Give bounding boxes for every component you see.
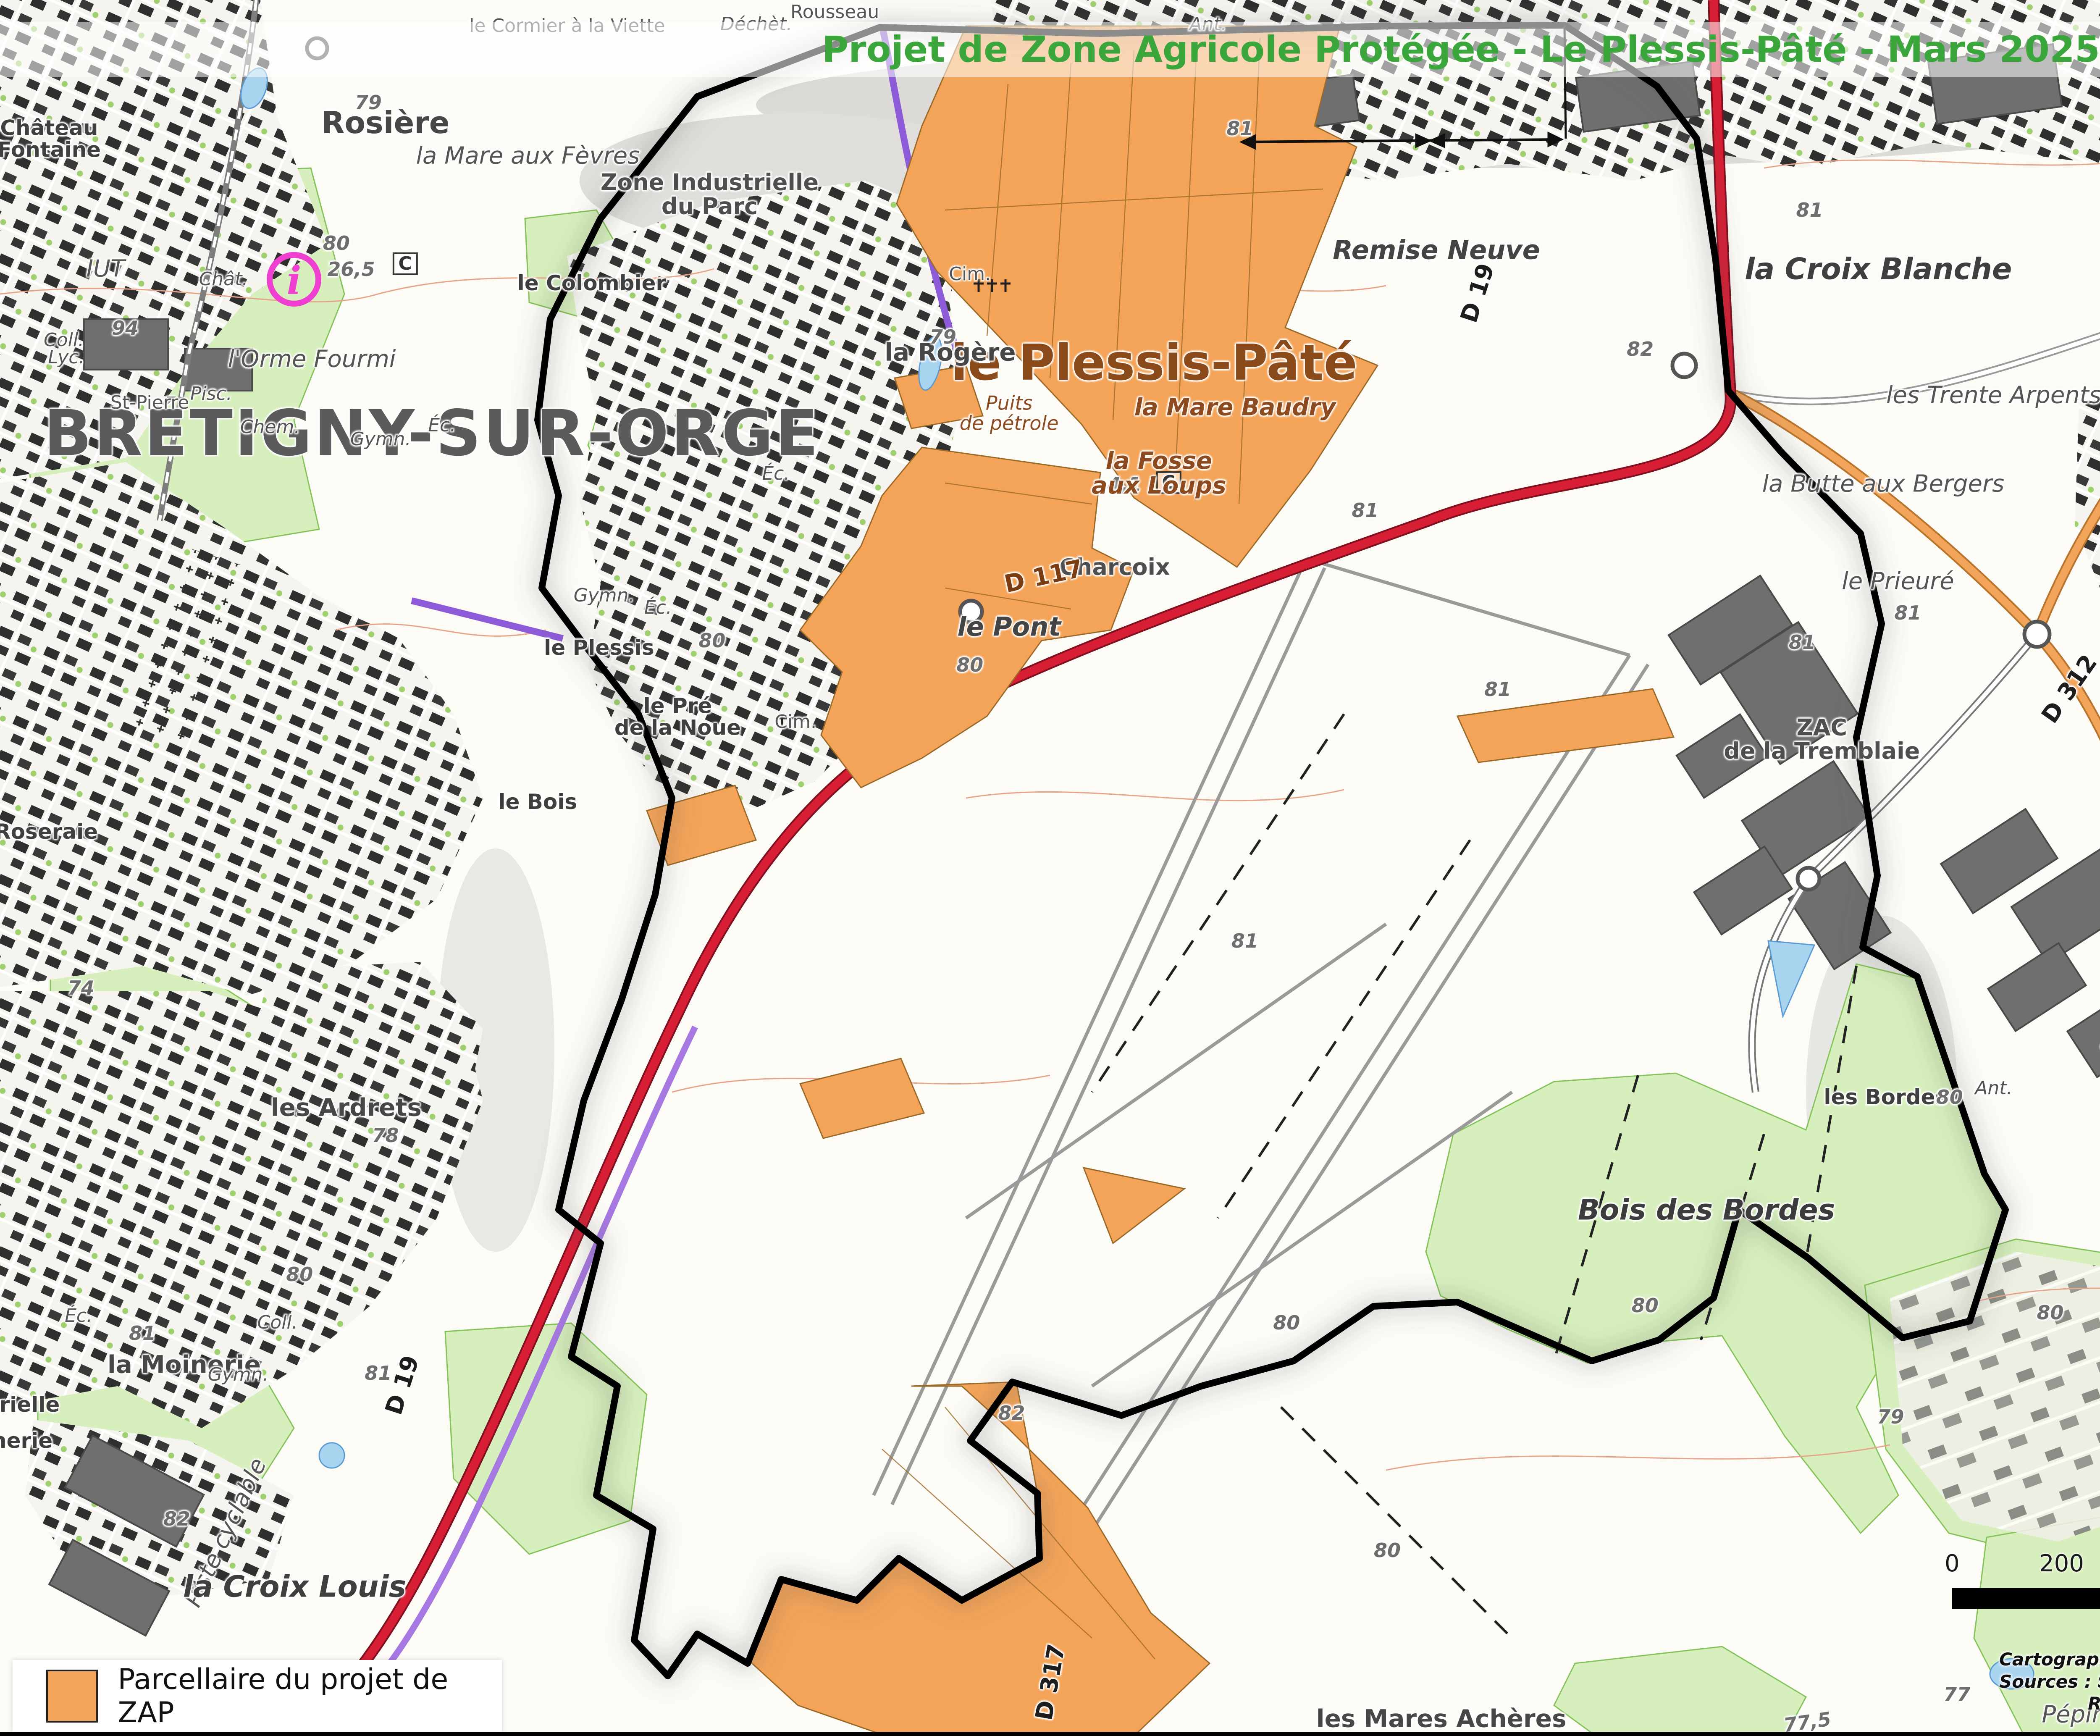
map-label: Pisc.: [190, 384, 232, 404]
map-label: le Pré de la Noue: [614, 695, 741, 739]
map-label: 80: [2037, 1302, 2063, 1322]
credit-line-1: Cartographie : SAFER Île-de-France - Mar…: [1999, 1649, 2100, 1671]
map-label: Chem.: [240, 418, 300, 437]
map-label: les Ardrets: [271, 1095, 422, 1120]
map-label: 81: [1352, 500, 1378, 520]
map-label: 79: [929, 327, 956, 347]
map-label: Ant.: [1975, 1079, 2012, 1098]
map-label: la Roseraie: [0, 820, 98, 843]
map-label: D 117: [1002, 556, 1085, 597]
map-label: Rosière: [321, 108, 450, 139]
map-label: la Butte aux Bergers: [1762, 472, 2005, 497]
map-label: 81: [1894, 603, 1921, 623]
map-label: le Plessis: [544, 636, 654, 659]
map-label: 81: [1789, 632, 1816, 652]
map-label: le Colombier: [517, 272, 667, 294]
map-label: le Bois: [498, 791, 577, 813]
map-label: 26,5: [327, 259, 375, 279]
map-label: Gymn.: [208, 1365, 269, 1384]
map-label: la Croix Blanche: [1745, 254, 2012, 285]
map-label: le Pont: [957, 613, 1061, 640]
map-label: Lyc.: [48, 348, 84, 367]
map-label: Coll.: [257, 1313, 298, 1332]
map-label: Zone Industrielle du Parc: [601, 171, 819, 218]
map-label: Chât.: [199, 270, 248, 289]
map-label: St-Pierre: [110, 393, 189, 412]
map-label: Remise Neuve: [1333, 236, 1540, 264]
map-label: D 19: [1457, 261, 1499, 326]
map-label: Coll.: [44, 331, 84, 350]
map-title: Projet de Zone Agricole Protégée - Le Pl…: [822, 29, 2100, 71]
map-label: 79: [1877, 1406, 1904, 1426]
map-label: 74: [68, 978, 94, 998]
map-label: ZAC de la Tremblaie: [1724, 716, 1920, 763]
map-label: 94: [112, 318, 139, 338]
map-label: 82: [1627, 339, 1654, 359]
map-label: les Trente Arpents: [1886, 383, 2100, 408]
map-label: nerie: [0, 1430, 52, 1452]
map-label: 81: [129, 1323, 156, 1343]
map-screenshot: i BRÉTIGNY-SUR-ORGEle Plessis-PâtéRosièr…: [0, 0, 2100, 1736]
map-label: 80: [1632, 1295, 1659, 1316]
map-label: Château Fontaine: [0, 117, 101, 161]
title-banner: Projet de Zone Agricole Protégée - Le Pl…: [0, 22, 2100, 77]
map-label: Cim.: [774, 712, 816, 732]
map-label: 80: [956, 655, 983, 675]
map-label: Bois des Bordes: [1578, 1195, 1835, 1225]
map-label: 80: [1374, 1540, 1401, 1560]
scale-bar: 0 200 400 m: [1945, 1546, 2100, 1613]
map-label: Rousseau: [790, 3, 879, 22]
map-label: Cim.: [949, 265, 991, 284]
scale-bar-rule: [1952, 1588, 2100, 1609]
map-label: Gymn.: [350, 430, 411, 449]
legend: Parcellaire du projet de ZAP: [13, 1660, 502, 1732]
legend-swatch-zap: [46, 1670, 98, 1723]
map-label: les Bordes: [1824, 1086, 1948, 1108]
map-label: le Prieuré: [1842, 569, 1954, 594]
map-label: 81: [1484, 679, 1511, 699]
map-label: 80: [323, 233, 350, 253]
scale-tick-0: 0: [1945, 1550, 1960, 1577]
map-label: 81: [1231, 931, 1258, 951]
scale-tick-200: 200: [2039, 1550, 2084, 1577]
map-label: 78: [372, 1125, 399, 1145]
map-label: trielle: [0, 1393, 60, 1416]
map-label: la Croix Louis: [183, 1571, 406, 1602]
map-label: 80: [1273, 1313, 1300, 1333]
map-label: 77: [1943, 1684, 1970, 1704]
map-label: l'Orme Fourmi: [228, 347, 396, 372]
map-label: 80: [698, 630, 725, 651]
map-label: 79: [355, 92, 382, 113]
map-label: 80: [286, 1264, 313, 1284]
map-label: Gymn.: [574, 586, 635, 605]
map-label: 81: [365, 1363, 391, 1383]
map-label: 82: [163, 1509, 190, 1529]
map-neatline: [0, 1732, 2100, 1736]
map-label: les Mares Achères: [1316, 1706, 1567, 1731]
legend-label: Parcellaire du projet de ZAP: [118, 1663, 502, 1729]
credits: Cartographie : SAFER Île-de-France - Mar…: [1999, 1649, 2100, 1715]
map-label: la Mare aux Fèvres: [416, 144, 640, 169]
map-label: Éc.: [762, 464, 790, 483]
map-label: 80: [1936, 1087, 1963, 1107]
map-label: la Fosse aux Loups: [1092, 449, 1226, 499]
map-label: Puits de pétrole: [960, 393, 1059, 433]
map-label: la Mare Baudry: [1134, 396, 1336, 420]
map-label: IUT: [87, 257, 125, 281]
map-label: 81: [1226, 118, 1253, 139]
credit-line-2: Sources : SAFER Île-de-France, IGN, Géop…: [1999, 1671, 2100, 1693]
map-label: 82: [998, 1403, 1025, 1423]
map-label: Éc.: [428, 415, 456, 435]
credit-line-3: REPRODUCTION INTERDITE: [1999, 1693, 2100, 1715]
map-label: C: [392, 252, 417, 275]
map-label: D 312: [2038, 651, 2100, 728]
map-label: Éc.: [65, 1306, 92, 1326]
map-label: Éc.: [644, 598, 672, 617]
map-label: 81: [1796, 200, 1823, 220]
map-label: D 317: [1032, 1642, 1070, 1722]
labels-layer: BRÉTIGNY-SUR-ORGEle Plessis-PâtéRosièrel…: [0, 0, 2100, 1736]
